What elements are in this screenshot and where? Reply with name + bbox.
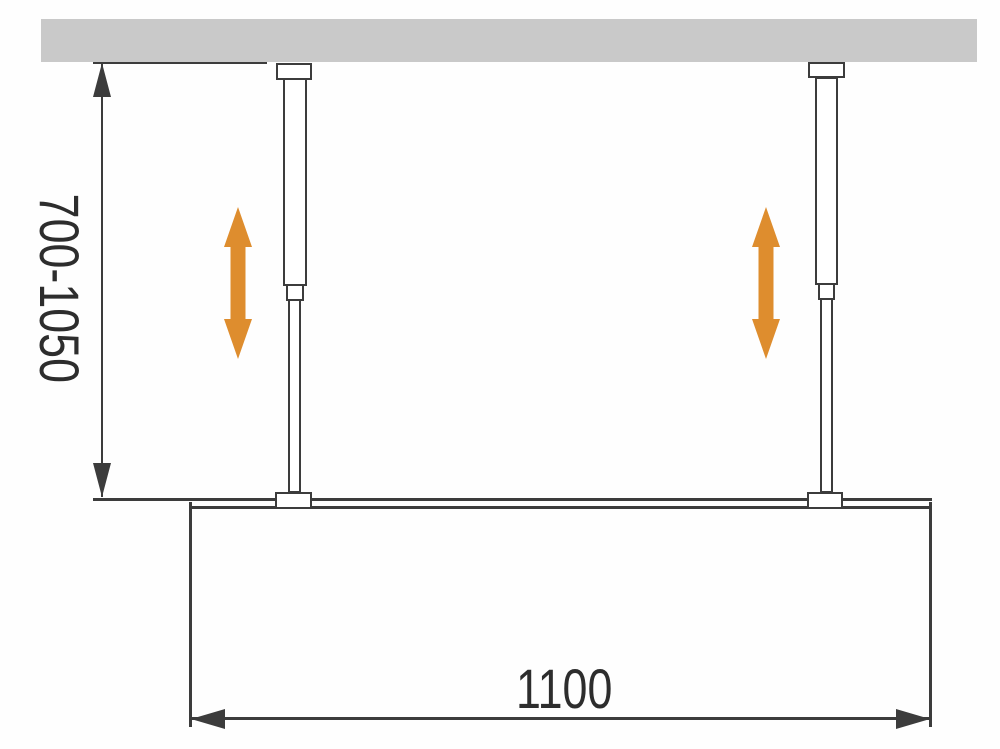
left-rod-lower-tube: [288, 299, 301, 493]
installation-diagram: 700-1050 1100: [0, 0, 1000, 749]
vertical-dimension-arrow-down-icon: [93, 463, 111, 497]
vertical-dimension-text: 700-1050: [31, 193, 87, 382]
height-adjust-arrow-right-icon: [751, 207, 781, 359]
double-vertical-arrow-shape: [752, 207, 780, 359]
vertical-dimension-label: 700-1050: [31, 168, 87, 408]
ceiling-bar: [41, 19, 977, 62]
vertical-dimension-line: [101, 63, 103, 497]
left-rod-ceiling-bracket: [276, 63, 312, 80]
vertical-dimension-extension-bottom: [93, 498, 193, 501]
vertical-dimension-extension-top: [93, 62, 267, 64]
left-rod-glass-clamp: [275, 492, 312, 509]
width-dimension-arrow-right-icon: [896, 709, 930, 729]
width-dimension-extension-left: [189, 502, 192, 727]
right-rod-lower-tube: [820, 298, 833, 493]
right-rod-glass-clamp: [807, 492, 843, 509]
height-adjust-arrow-left-icon: [223, 207, 253, 359]
right-rod-upper-tube: [815, 77, 838, 285]
width-dimension-arrow-left-icon: [191, 709, 225, 729]
right-rod-ceiling-bracket: [808, 62, 845, 78]
width-dimension-label: 1100: [464, 661, 664, 717]
left-rod-upper-tube: [283, 78, 307, 286]
width-dimension-text: 1100: [516, 661, 612, 717]
width-dimension-extension-right: [929, 502, 932, 727]
vertical-dimension-arrow-up-icon: [93, 63, 111, 97]
double-vertical-arrow-shape: [224, 207, 252, 359]
